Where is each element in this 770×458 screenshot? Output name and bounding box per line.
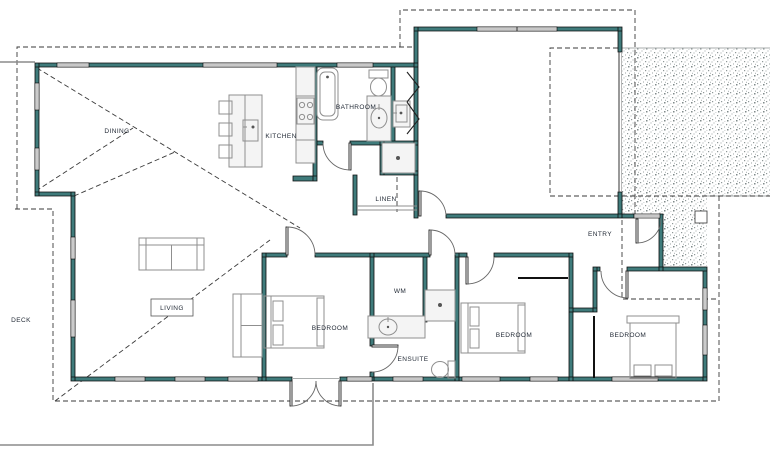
bed-icon xyxy=(461,303,525,353)
living-furniture xyxy=(139,238,262,357)
room-label-ensuite: ENSUITE xyxy=(398,356,429,363)
bathroom-vanity xyxy=(367,96,391,141)
linen-shelves xyxy=(357,206,417,210)
laundry-tub-icon xyxy=(393,101,410,127)
room-label-entry: ENTRY xyxy=(588,231,612,238)
bathroom-door xyxy=(349,143,351,170)
toilet-icon xyxy=(369,70,388,96)
porch-post xyxy=(695,211,707,223)
ensuite-toilet-icon xyxy=(432,361,456,378)
ensuite-vanity xyxy=(368,316,425,338)
laundry-door xyxy=(429,230,431,255)
garage-hall-door xyxy=(419,191,421,216)
wardrobe-sliders xyxy=(518,278,594,378)
room-label-dining: DINING xyxy=(104,128,129,135)
room-label-bedroom1: BEDROOM xyxy=(312,325,348,332)
garage-door xyxy=(619,52,622,192)
room-label-wm: WM xyxy=(394,288,406,295)
bedroom3-furniture xyxy=(627,316,679,378)
bedroom1-door xyxy=(286,227,288,255)
room-label-deck: DECK xyxy=(11,317,31,324)
room-label-bedroom3: BEDROOM xyxy=(610,332,646,339)
shower-icon xyxy=(382,143,415,173)
bedroom1-furniture xyxy=(264,296,324,348)
bedroom2-furniture xyxy=(461,303,525,353)
kitchen-fixtures xyxy=(219,67,315,167)
bed-icon xyxy=(627,316,679,378)
sofa-icon xyxy=(139,238,204,270)
floor-plan-drawing: DINING KITCHEN BATHROOM LINEN ENTRY LIVI… xyxy=(0,0,770,458)
floor-plan: DINING KITCHEN BATHROOM LINEN ENTRY LIVI… xyxy=(0,0,770,458)
room-labels: DINING KITCHEN BATHROOM LINEN ENTRY LIVI… xyxy=(11,104,646,363)
bedroom3-door xyxy=(626,271,628,298)
bathroom-fixtures xyxy=(317,68,419,210)
bathtub-icon xyxy=(317,68,338,120)
entry-door xyxy=(636,219,638,243)
bed-icon xyxy=(264,296,324,348)
room-label-living: LIVING xyxy=(160,305,184,312)
doors xyxy=(286,143,661,406)
ensuite-shower-icon xyxy=(425,290,455,321)
driveway-stipple xyxy=(622,48,770,267)
room-label-kitchen: KITCHEN xyxy=(265,133,296,140)
ensuite-door xyxy=(372,345,398,347)
room-label-linen: LINEN xyxy=(375,196,396,203)
sofa2-icon xyxy=(233,294,262,357)
room-label-bedroom2: BEDROOM xyxy=(496,332,532,339)
living-label-box: LIVING xyxy=(151,299,193,316)
bedroom2-door xyxy=(466,257,468,284)
room-label-bathroom: BATHROOM xyxy=(336,104,376,111)
french-doors xyxy=(290,379,341,407)
ensuite-fixtures xyxy=(368,290,455,378)
